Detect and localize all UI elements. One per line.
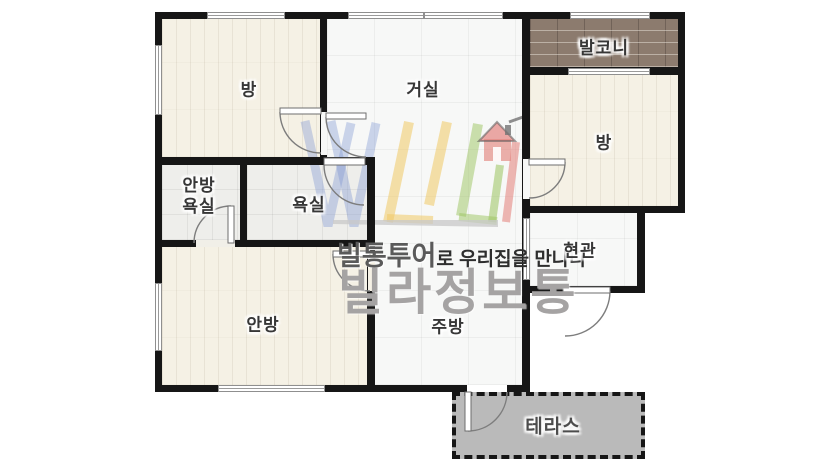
room-label-bedroom-top-left: 방 <box>241 76 258 101</box>
room-label-terrace: 테라스 <box>525 412 580 439</box>
door-leaf-terrace <box>465 392 471 431</box>
room-label-master-bathroom: 안방 욕실 <box>182 175 215 217</box>
room-label-living-room: 거실 <box>406 76 439 101</box>
room-label-master-bedroom: 안방 <box>246 311 279 336</box>
door-leaf-hall <box>326 113 366 119</box>
door-leaf-bedroom2 <box>529 159 565 165</box>
door-leaf-bathroom <box>324 158 365 165</box>
room-label-bedroom-right: 방 <box>596 129 613 154</box>
master-bathroom-line1: 안방 <box>182 176 215 195</box>
room-label-entrance: 현관 <box>563 237 596 262</box>
door-leaf-masterbath <box>228 206 234 243</box>
door-leaf-bedroom1 <box>280 108 321 114</box>
room-label-kitchen: 주방 <box>431 313 464 338</box>
floor-plan: 빌통투어로 우리집을 만나다 빌라정보통 방 거실 발코니 방 안방 욕실 욕실… <box>0 0 840 472</box>
room-label-bathroom: 욕실 <box>292 191 325 216</box>
master-bathroom-line2: 욕실 <box>182 197 215 216</box>
room-label-balcony: 발코니 <box>579 34 629 59</box>
